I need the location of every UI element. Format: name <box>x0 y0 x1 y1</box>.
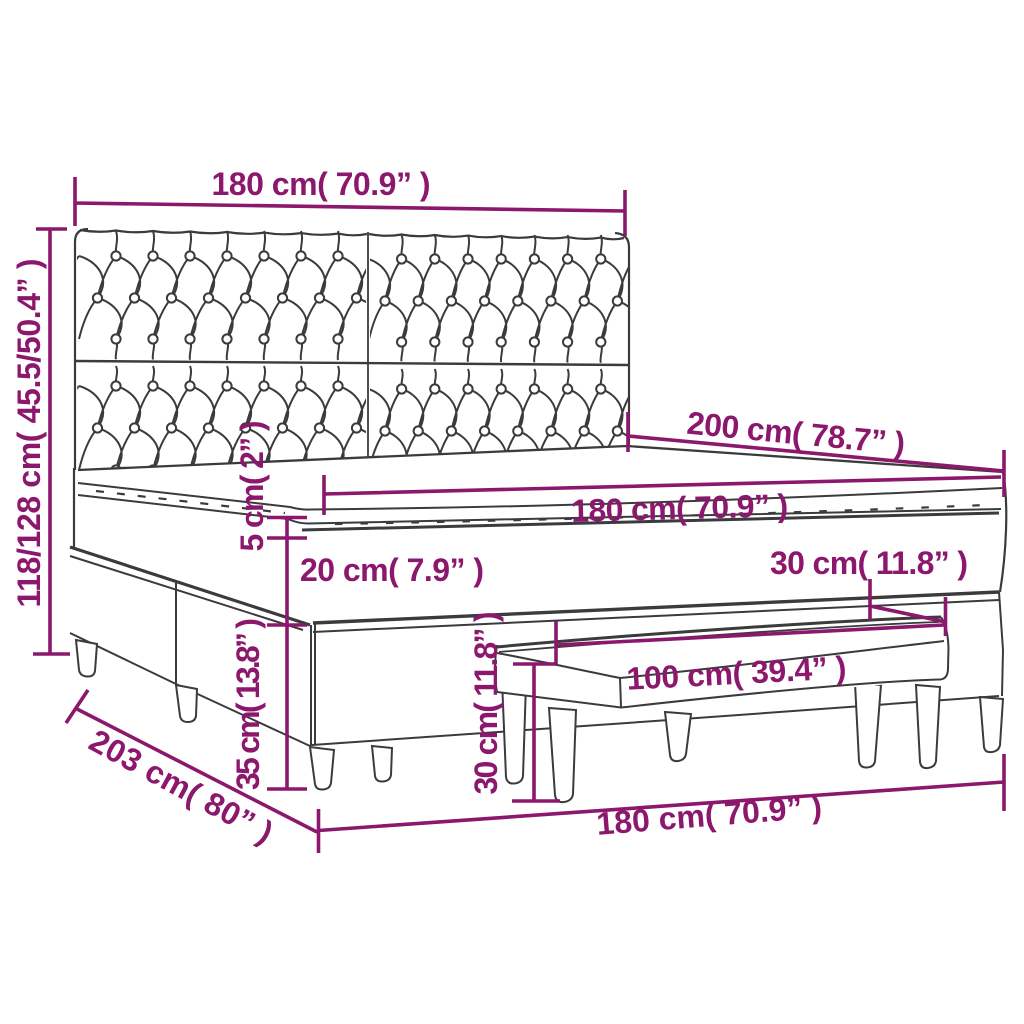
svg-text:35 cm( 13.8” ): 35 cm( 13.8” ) <box>230 618 266 790</box>
svg-text:20 cm( 7.9” ): 20 cm( 7.9” ) <box>300 552 484 588</box>
svg-text:5 cm( 2” ): 5 cm( 2” ) <box>234 421 270 552</box>
svg-text:118/128 cm( 45.5/50.4” ): 118/128 cm( 45.5/50.4” ) <box>11 259 47 608</box>
svg-text:30 cm( 11.8” ): 30 cm( 11.8” ) <box>770 545 968 581</box>
svg-text:180 cm( 70.9” ): 180 cm( 70.9” ) <box>571 487 789 529</box>
svg-text:30 cm( 11.8” ): 30 cm( 11.8” ) <box>468 612 504 795</box>
svg-text:180 cm( 70.9” ): 180 cm( 70.9” ) <box>212 166 431 202</box>
